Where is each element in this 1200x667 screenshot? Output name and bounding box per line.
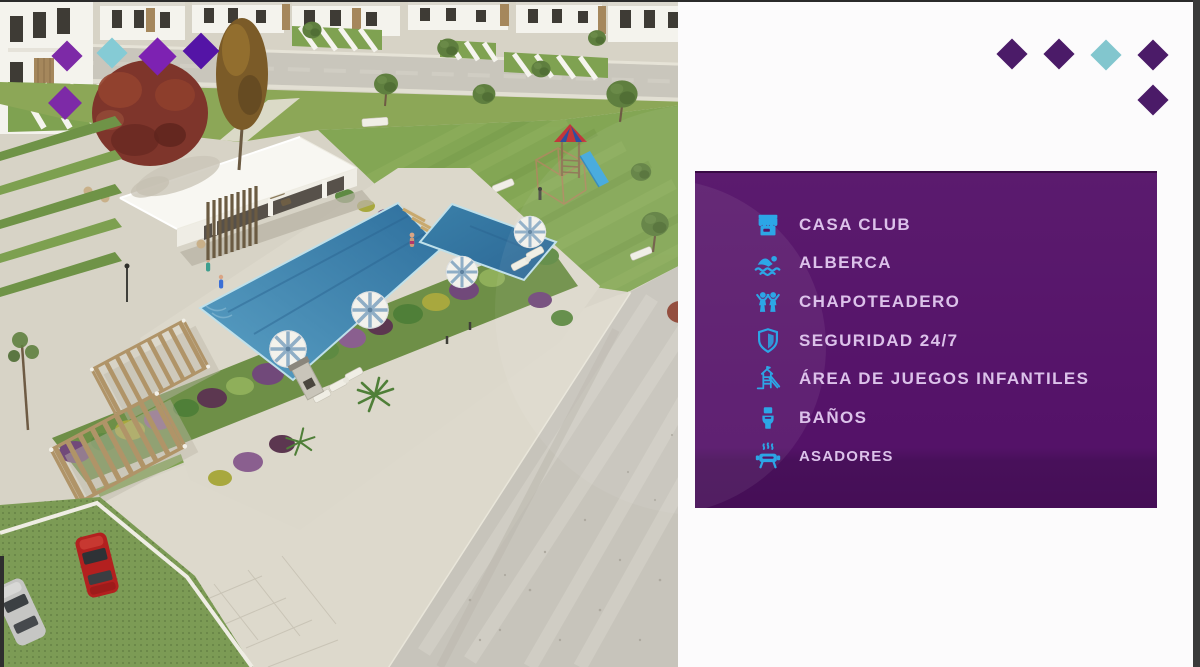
children-icon bbox=[753, 287, 783, 317]
amenities-list: CASA CLUB ALBERCA bbox=[695, 173, 1157, 508]
decor-diamond bbox=[1090, 39, 1121, 70]
amenity-label: ASADORES bbox=[799, 448, 894, 465]
storefront-icon bbox=[753, 210, 783, 240]
shield-icon bbox=[753, 326, 783, 356]
decor-diamond bbox=[1043, 38, 1074, 69]
decor-diamond bbox=[996, 38, 1027, 69]
aerial-render-art bbox=[0, 0, 678, 667]
playground-icon bbox=[753, 364, 783, 394]
toilet-icon bbox=[753, 403, 783, 433]
red-tree bbox=[92, 60, 208, 166]
amenity-label: ALBERCA bbox=[799, 253, 892, 273]
amenity-item-casa-club: CASA CLUB bbox=[753, 205, 1157, 244]
grill-icon bbox=[753, 441, 783, 471]
property-aerial-render bbox=[0, 0, 678, 667]
amenity-label: SEGURIDAD 24/7 bbox=[799, 331, 958, 351]
amenity-label: CASA CLUB bbox=[799, 215, 911, 235]
amenity-item-juegos: ÁREA DE JUEGOS INFANTILES bbox=[753, 360, 1157, 399]
decor-diamond bbox=[1137, 39, 1168, 70]
screenshot-root: CASA CLUB ALBERCA bbox=[0, 0, 1200, 667]
decor-diamond bbox=[1137, 84, 1168, 115]
amenity-label: CHAPOTEADERO bbox=[799, 292, 960, 312]
frame-border-left bbox=[0, 556, 4, 667]
amenity-item-asadores: ASADORES bbox=[753, 437, 1157, 476]
frame-border-right bbox=[1193, 0, 1200, 667]
person-swimmer bbox=[410, 233, 415, 247]
amenity-label: BAÑOS bbox=[799, 408, 867, 428]
amenity-label: ÁREA DE JUEGOS INFANTILES bbox=[799, 369, 1089, 389]
amenity-item-chapoteadero: CHAPOTEADERO bbox=[753, 283, 1157, 322]
frame-border-top bbox=[0, 0, 1200, 2]
amenity-item-alberca: ALBERCA bbox=[753, 244, 1157, 283]
amenity-item-banos: BAÑOS bbox=[753, 398, 1157, 437]
swimmer-icon bbox=[753, 248, 783, 278]
amenity-item-seguridad: SEGURIDAD 24/7 bbox=[753, 321, 1157, 360]
amenities-panel: CASA CLUB ALBERCA bbox=[695, 171, 1157, 508]
